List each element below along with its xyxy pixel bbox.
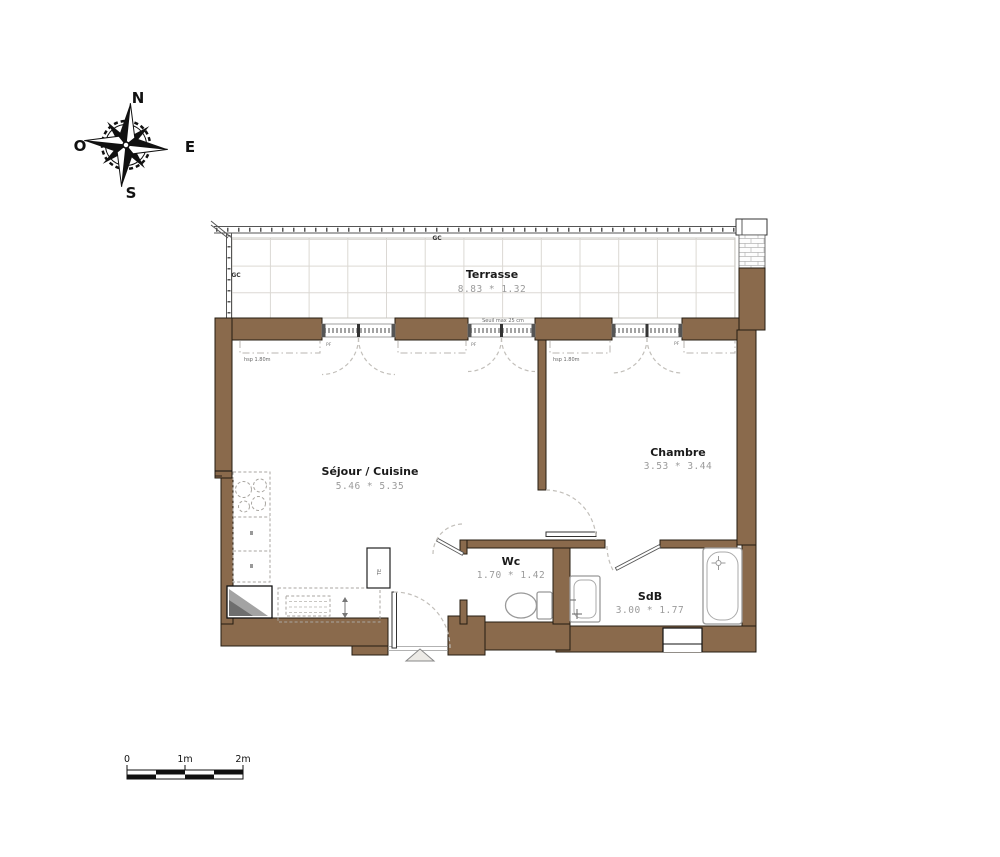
window-label: PF xyxy=(471,342,477,348)
wall-segment xyxy=(739,268,765,330)
compass-east-label: E xyxy=(185,138,195,156)
terrace-area: GC GC Terrasse 8.83 * 1.32 xyxy=(211,219,767,318)
compass-west-label: O xyxy=(74,137,87,155)
scale-one-meter-label: 1m xyxy=(177,754,192,765)
ceiling-height-lines: hsp 1.80m hsp 1.80m xyxy=(240,341,735,363)
kitchen xyxy=(227,472,380,622)
wall-segment xyxy=(742,545,756,637)
wall-segment xyxy=(737,330,756,545)
compass-south-label: S xyxy=(126,184,137,202)
masonry-pier xyxy=(736,219,767,268)
ceiling-height-note-living: hsp 1.80m xyxy=(244,357,271,363)
wall-segment xyxy=(682,318,739,340)
terrace-label: Terrasse xyxy=(466,268,518,281)
threshold-note: Seuil max 25 cm xyxy=(482,318,524,324)
appliance-mark xyxy=(250,564,253,568)
living-room-dimensions: 5.46 * 5.35 xyxy=(336,481,404,492)
wc-dimensions: 1.70 * 1.42 xyxy=(477,570,545,581)
scale-zero-label: 0 xyxy=(124,754,130,765)
bedroom-dimensions: 3.53 * 3.44 xyxy=(644,461,712,472)
wall-recess xyxy=(663,628,702,652)
closet-label: TE xyxy=(377,569,383,576)
wall-partition xyxy=(467,540,605,548)
entry-door-leaf xyxy=(392,592,397,648)
wall-segment xyxy=(395,318,468,340)
appliance-mark xyxy=(250,531,253,535)
compass-north-label: N xyxy=(132,89,145,107)
entry-closet: TE xyxy=(367,548,390,588)
bathroom-label: SdB xyxy=(638,590,662,603)
terrace-railing-top xyxy=(211,221,766,238)
wall-partition xyxy=(660,540,737,548)
island-symbol xyxy=(342,597,348,618)
scale-two-meter-label: 2m xyxy=(235,754,250,765)
bedroom-door xyxy=(546,490,596,540)
bedroom-window xyxy=(612,324,682,373)
living-window-2: Seuil max 25 cm xyxy=(468,318,535,372)
living-room-label: Séjour / Cuisine xyxy=(322,465,419,478)
bathroom-door-leaf xyxy=(615,545,660,571)
wall-segment xyxy=(535,318,612,340)
living-window-1 xyxy=(322,324,395,375)
wc-door xyxy=(433,524,464,555)
floor-plan-page: N E S O GC GC Terrasse 8.83 * 1.32 xyxy=(0,0,1000,857)
window-label: PF xyxy=(674,341,680,347)
wall-partition xyxy=(553,548,570,624)
compass-center xyxy=(123,142,130,149)
ceiling-height-note-bedroom: hsp 1.80m xyxy=(553,357,580,363)
wall-segment xyxy=(556,626,756,652)
sink-fixture xyxy=(570,576,600,622)
technical-shaft xyxy=(227,586,272,618)
wall-partition xyxy=(460,600,467,624)
floor-plan-drawing: N E S O GC GC Terrasse 8.83 * 1.32 xyxy=(0,0,1000,857)
windows: Seuil max 25 cm PF PF PF xyxy=(322,318,682,375)
scale-bar: 0 1m 2m xyxy=(124,754,251,779)
terrace-dimensions: 8.83 * 1.32 xyxy=(458,284,526,295)
entry-door xyxy=(388,592,450,661)
bathroom-door xyxy=(607,545,661,572)
toilet-fixture xyxy=(506,592,553,619)
stove-burners xyxy=(236,479,267,512)
window-label: PF xyxy=(326,342,332,348)
wall-segment xyxy=(215,318,232,478)
wall-partition xyxy=(538,340,546,490)
bedroom-door-leaf xyxy=(546,532,596,537)
bathtub-fixture xyxy=(703,548,742,624)
railing-label-top: GC xyxy=(432,235,442,242)
bedroom-label: Chambre xyxy=(650,446,706,459)
kitchen-island xyxy=(278,588,380,622)
wc-label: Wc xyxy=(502,555,521,568)
railing-label-left: GC xyxy=(231,272,241,279)
bathroom-dimensions: 3.00 * 1.77 xyxy=(616,605,684,616)
compass-rose: N E S O xyxy=(74,89,196,202)
